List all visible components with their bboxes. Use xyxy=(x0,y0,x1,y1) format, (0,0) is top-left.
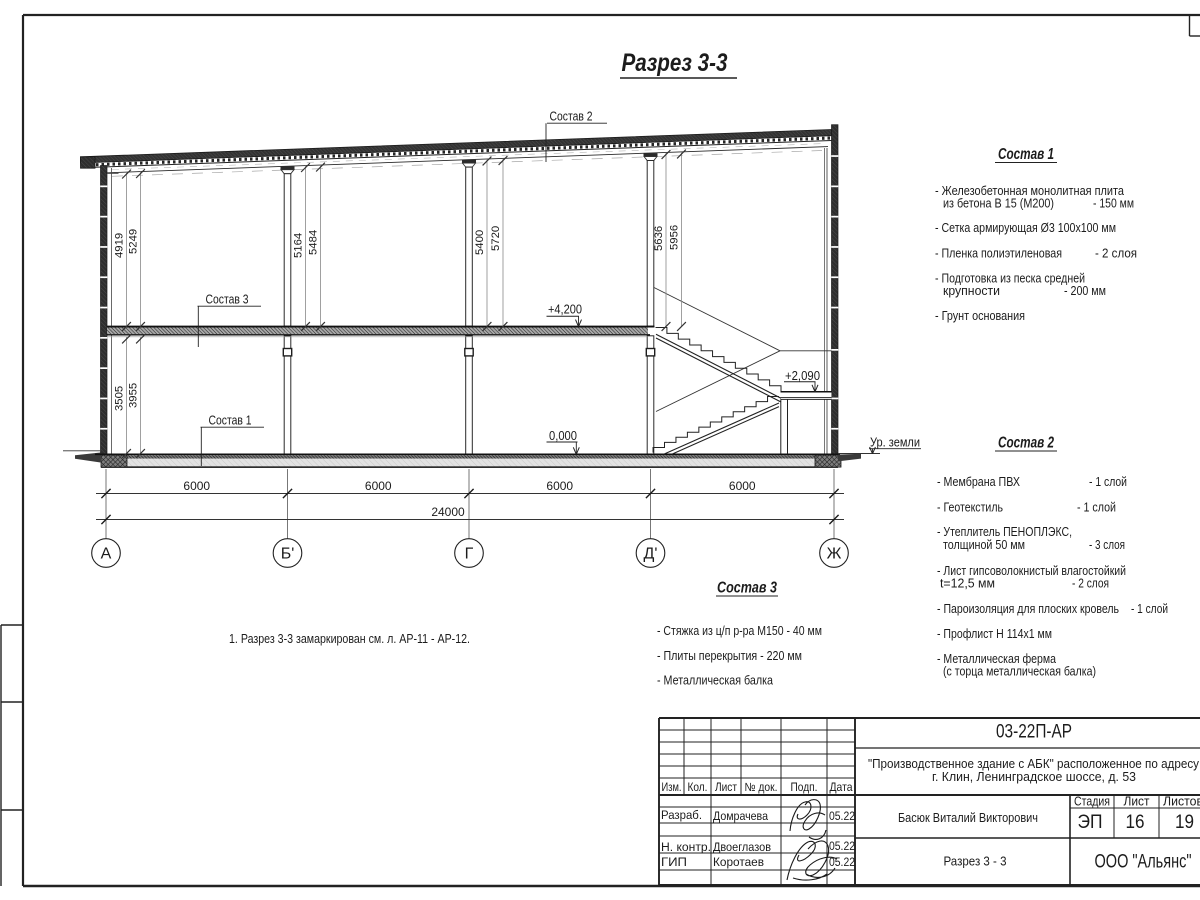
svg-text:5720: 5720 xyxy=(490,226,502,251)
svg-text:Разрез 3-3: Разрез 3-3 xyxy=(622,49,728,77)
svg-text:5484: 5484 xyxy=(308,230,320,255)
svg-text:Домрачева: Домрачева xyxy=(713,809,768,823)
svg-text:Состав 2: Состав 2 xyxy=(998,435,1054,452)
svg-text:крупности: крупности xyxy=(943,284,1000,298)
svg-text:Состав 3: Состав 3 xyxy=(717,580,777,597)
svg-text:- Металлическая балка: - Металлическая балка xyxy=(657,674,773,688)
svg-text:- 1 слой: - 1 слой xyxy=(1077,501,1116,515)
svg-text:Состав 1: Состав 1 xyxy=(209,413,252,428)
svg-text:Г: Г xyxy=(465,546,474,563)
svg-text:ООО "Альянс": ООО "Альянс" xyxy=(1095,852,1192,873)
svg-text:Лист: Лист xyxy=(1124,794,1150,809)
svg-text:5249: 5249 xyxy=(128,229,140,254)
svg-text:из бетона В 15 (М200): из бетона В 15 (М200) xyxy=(943,197,1054,211)
svg-text:Ур. земли: Ур. земли xyxy=(870,436,920,450)
svg-text:24000: 24000 xyxy=(431,505,465,519)
svg-text:- Пленка полиэтиленовая: - Пленка полиэтиленовая xyxy=(935,247,1062,261)
svg-text:Ж: Ж xyxy=(827,546,842,563)
svg-text:+4,200: +4,200 xyxy=(548,302,582,317)
svg-text:г. Клин, Ленинградское шоссе,: г. Клин, Ленинградское шоссе, д. 53 xyxy=(932,769,1136,784)
svg-text:05.22: 05.22 xyxy=(829,809,855,823)
svg-text:Двоеглазов: Двоеглазов xyxy=(713,840,771,854)
svg-text:Подп.: Подп. xyxy=(791,780,818,794)
svg-text:5636: 5636 xyxy=(653,226,665,251)
svg-text:1. Разрез 3-3 замаркирован см.: 1. Разрез 3-3 замаркирован см. л. АР-11 … xyxy=(229,632,470,646)
svg-text:- Плиты перекрытия - 220 мм: - Плиты перекрытия - 220 мм xyxy=(657,649,802,663)
svg-text:№ док.: № док. xyxy=(745,780,778,794)
svg-text:Стадия: Стадия xyxy=(1074,794,1110,809)
svg-text:- 150 мм: - 150 мм xyxy=(1093,197,1134,211)
svg-text:Листов: Листов xyxy=(1163,794,1200,809)
svg-text:- 1 слой: - 1 слой xyxy=(1089,475,1127,489)
svg-text:Д': Д' xyxy=(644,546,658,563)
svg-text:+2,090: +2,090 xyxy=(785,368,820,383)
svg-text:- Стяжка из ц/п р-ра М150 - 40: - Стяжка из ц/п р-ра М150 - 40 мм xyxy=(657,624,822,638)
svg-text:05.22: 05.22 xyxy=(829,839,855,853)
svg-text:ЭП: ЭП xyxy=(1078,812,1103,833)
svg-text:- 200 мм: - 200 мм xyxy=(1064,284,1106,298)
svg-text:- Утеплитель ПЕНОПЛЭКС,: - Утеплитель ПЕНОПЛЭКС, xyxy=(937,525,1072,539)
svg-text:- 1 слой: - 1 слой xyxy=(1131,602,1168,616)
svg-text:4919: 4919 xyxy=(114,233,126,258)
svg-text:03-22П-АР: 03-22П-АР xyxy=(996,722,1072,743)
svg-text:- Пароизоляция для плоских кро: - Пароизоляция для плоских кровель xyxy=(937,602,1119,616)
svg-text:Состав 1: Состав 1 xyxy=(998,146,1054,163)
svg-text:- 2 слоя: - 2 слоя xyxy=(1095,247,1137,261)
svg-text:- Геотекстиль: - Геотекстиль xyxy=(937,501,1003,515)
svg-text:- Сетка армирующая Ø3 100х100: - Сетка армирующая Ø3 100х100 мм xyxy=(935,221,1116,235)
svg-text:t=12,5 мм: t=12,5 мм xyxy=(940,577,995,591)
svg-text:толщиной 50 мм: толщиной 50 мм xyxy=(943,538,1025,552)
svg-text:5400: 5400 xyxy=(474,230,486,255)
svg-text:3505: 3505 xyxy=(114,386,126,411)
svg-text:Н. контр.: Н. контр. xyxy=(661,840,711,854)
svg-text:Состав 2: Состав 2 xyxy=(550,109,593,124)
svg-text:5164: 5164 xyxy=(293,233,305,258)
svg-text:А: А xyxy=(101,546,112,563)
svg-text:Лист: Лист xyxy=(715,780,738,794)
svg-text:- Грунт основания: - Грунт основания xyxy=(935,309,1025,323)
svg-text:ГИП: ГИП xyxy=(661,855,687,869)
svg-text:6000: 6000 xyxy=(183,479,210,493)
svg-text:Изм.: Изм. xyxy=(662,780,682,794)
svg-text:6000: 6000 xyxy=(546,479,573,493)
svg-text:Кол.: Кол. xyxy=(688,780,708,794)
svg-text:Б': Б' xyxy=(281,546,295,563)
svg-text:Разраб.: Разраб. xyxy=(661,808,702,822)
svg-text:Басюк Виталий Викторович: Басюк Виталий Викторович xyxy=(898,810,1038,825)
svg-text:- Профлист Н 114х1 мм: - Профлист Н 114х1 мм xyxy=(937,627,1052,641)
svg-text:(с торца металлическая балка): (с торца металлическая балка) xyxy=(943,665,1096,679)
svg-text:6000: 6000 xyxy=(729,479,756,493)
svg-text:16: 16 xyxy=(1126,812,1145,833)
svg-text:6000: 6000 xyxy=(365,479,392,493)
svg-text:Дата: Дата xyxy=(830,780,853,794)
svg-text:Состав 3: Состав 3 xyxy=(206,292,249,307)
svg-text:Коротаев: Коротаев xyxy=(713,855,764,869)
svg-text:- Мембрана ПВХ: - Мембрана ПВХ xyxy=(937,475,1021,489)
svg-text:0,000: 0,000 xyxy=(549,428,577,443)
svg-text:3955: 3955 xyxy=(128,383,140,408)
svg-text:19: 19 xyxy=(1175,812,1194,833)
svg-text:- 3 слоя: - 3 слоя xyxy=(1089,538,1125,552)
svg-text:Разрез 3 - 3: Разрез 3 - 3 xyxy=(944,854,1007,869)
svg-text:5956: 5956 xyxy=(669,225,681,250)
svg-text:- 2 слоя: - 2 слоя xyxy=(1072,577,1109,591)
